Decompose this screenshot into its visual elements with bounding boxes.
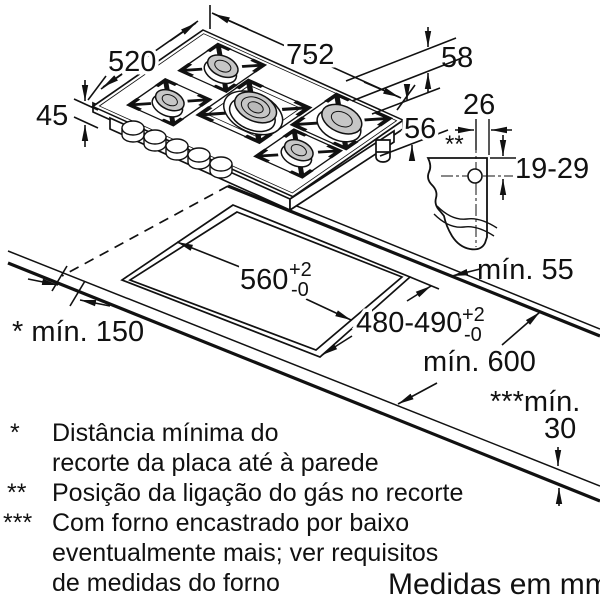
control-knob: [144, 130, 166, 151]
body-height-label: 56: [404, 113, 436, 145]
extension-line: [372, 88, 440, 114]
footnote-line-2: recorte da placa até à parede: [52, 449, 379, 477]
min-wall-label: * mín. 150: [12, 316, 144, 348]
dim-min-below: [558, 447, 559, 506]
cutout-width-label: 560: [240, 264, 288, 296]
dimension-arrow: [502, 312, 540, 345]
diagram-canvas: * mín. 150 560 +2 -0 480-490 +2 -0 mín. …: [0, 0, 600, 600]
dimension-arrow: [322, 336, 352, 355]
units-note: Medidas em mm: [388, 568, 600, 600]
dimension-arrow: [407, 286, 431, 301]
control-knob: [210, 157, 232, 178]
cutout-depth-label: 480-490: [356, 307, 462, 339]
hob-depth-label: 520: [108, 46, 156, 78]
footnote-star-3: ***: [3, 509, 32, 537]
edge-height-label: 58: [441, 42, 473, 74]
extension-tick: [410, 277, 439, 289]
cutout-depth-tol-minus: -0: [464, 324, 482, 346]
gas-position-marker: **: [445, 131, 464, 158]
hob-height-label: 45: [36, 100, 68, 132]
hob-leg: [376, 140, 390, 162]
footnote-star-2: **: [7, 479, 27, 507]
extension-tick: [74, 117, 98, 128]
min-counter-label: mín. 600: [423, 346, 536, 378]
cutout-width-tol-plus: +2: [289, 259, 312, 281]
footnote-line-6: de medidas do forno: [52, 569, 280, 597]
gas-offset-label: 26: [463, 89, 495, 121]
gas-connection-point: [468, 169, 482, 183]
footnote-line-1: Distância mínima do: [52, 419, 278, 447]
installation-diagram: * mín. 150 560 +2 -0 480-490 +2 -0 mín. …: [0, 0, 600, 600]
control-knob: [188, 148, 210, 169]
footnote-line-4: Com forno encastrado por baixo: [52, 509, 409, 537]
gas-connection-detail: [428, 119, 516, 249]
hob-width-label: 752: [286, 39, 334, 71]
cutout-depth-tol-plus: +2: [462, 304, 485, 326]
footnote-line-3: Posição da ligação do gás no recorte: [52, 479, 463, 507]
dimension-arrow: [306, 299, 351, 320]
footnote-star-1: *: [10, 419, 20, 447]
control-knob: [122, 121, 144, 142]
gas-depth-label: 19-29: [515, 153, 589, 185]
min-rear-label: mín. 55: [477, 254, 574, 286]
cutout-width-tol-minus: -0: [291, 279, 309, 301]
extension-line: [346, 38, 456, 81]
dimension-arrow: [398, 383, 437, 404]
footnote-line-5: eventualmente mais; ver requisitos: [52, 539, 438, 567]
projection-dashed-line: [62, 186, 228, 276]
dimension-arrow: [177, 242, 240, 267]
dimension-arrow: [214, 14, 248, 29]
control-knob: [166, 139, 188, 160]
min-below-value: 30: [544, 413, 576, 445]
